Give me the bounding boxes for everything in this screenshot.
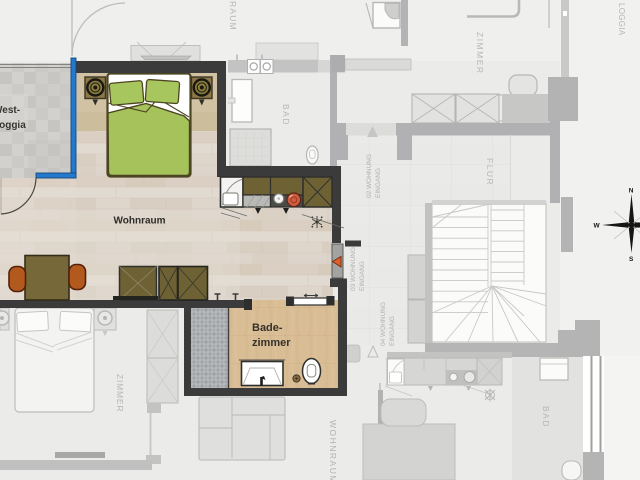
svg-text:03 WOHNUNG: 03 WOHNUNG [350, 247, 357, 291]
svg-text:WOHNRAUM: WOHNRAUM [328, 420, 338, 480]
svg-text:West-: West- [0, 105, 20, 116]
svg-text:RAUM: RAUM [228, 1, 238, 31]
svg-text:Wohnraum: Wohnraum [114, 216, 166, 227]
svg-text:BAD: BAD [281, 104, 291, 126]
svg-text:BAD: BAD [541, 406, 551, 428]
svg-text:zimmer: zimmer [252, 337, 291, 349]
svg-text:N: N [629, 188, 634, 195]
svg-text:Bade-: Bade- [252, 322, 283, 334]
svg-text:LOGGIA: LOGGIA [617, 3, 626, 36]
svg-text:ZIMMER: ZIMMER [475, 32, 485, 75]
svg-text:W: W [594, 223, 601, 230]
svg-text:S: S [629, 256, 634, 263]
svg-text:Loggia: Loggia [0, 120, 26, 131]
svg-text:EINGANG: EINGANG [359, 261, 366, 291]
svg-text:02 WOHNUNG: 02 WOHNUNG [366, 154, 373, 198]
svg-text:04 WOHNUNG: 04 WOHNUNG [380, 302, 387, 346]
svg-text:EINGANG: EINGANG [375, 168, 382, 198]
svg-text:EINGANG: EINGANG [389, 316, 396, 346]
svg-text:FLUR: FLUR [485, 158, 495, 186]
svg-text:ZIMMER: ZIMMER [115, 374, 125, 412]
